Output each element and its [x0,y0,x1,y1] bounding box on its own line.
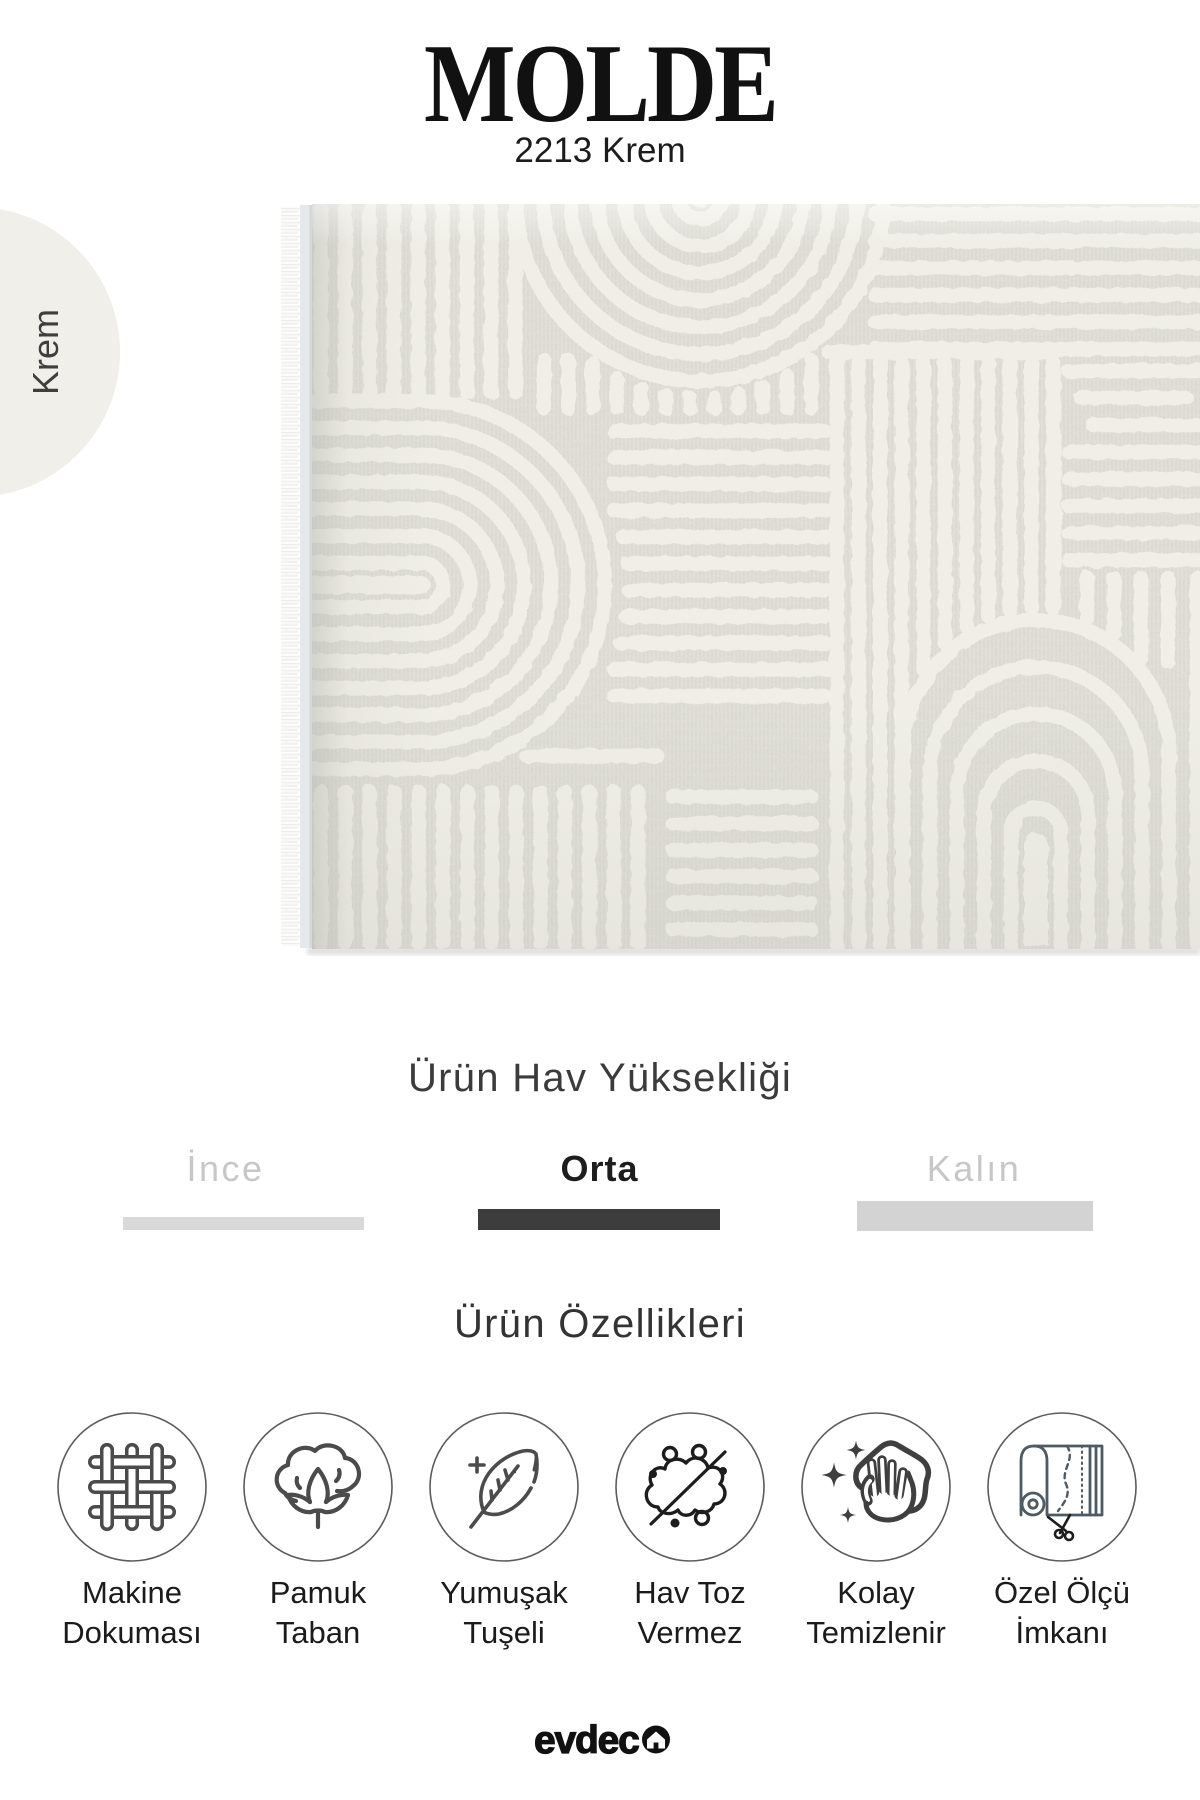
svg-text:evdec: evdec [534,1719,639,1762]
